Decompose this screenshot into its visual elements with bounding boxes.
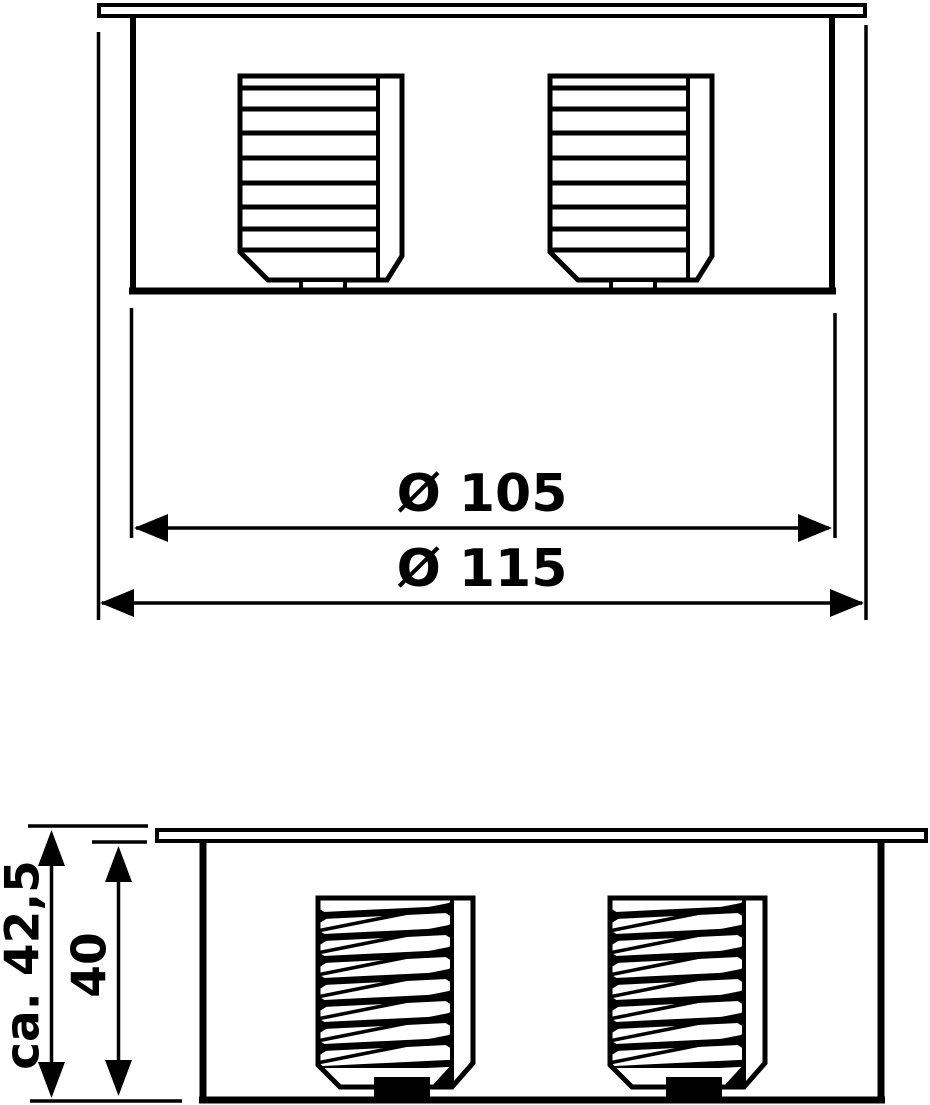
dimension-inner-diameter: Ø 105 [132, 308, 836, 542]
threaded-stud-left [312, 898, 473, 1103]
arrowhead-left-icon [134, 514, 168, 542]
side-view: ca. 42,5 40 [0, 826, 926, 1103]
socket-module-right [550, 76, 712, 290]
arrowhead-down-icon [105, 1060, 132, 1096]
dimension-outer-diameter: Ø 115 [99, 25, 867, 620]
arrowhead-left-icon [100, 589, 134, 617]
technical-drawing-canvas: Ø 105 Ø 115 ca. 42,5 [0, 0, 930, 1105]
arrowhead-right-icon [798, 514, 832, 542]
dimension-recess-depth: 40 [63, 842, 148, 1096]
dimension-label-inner-diameter: Ø 105 [397, 464, 568, 524]
dimension-label-outer-diameter: Ø 115 [397, 539, 568, 599]
technical-drawing-page: Ø 105 Ø 115 ca. 42,5 [0, 0, 930, 1105]
dimension-label-overall-height: ca. 42,5 [0, 860, 51, 1070]
socket-module-left [240, 76, 402, 290]
threaded-stud-right [604, 898, 765, 1103]
top-view: Ø 105 Ø 115 [99, 5, 867, 620]
dimension-label-recess-depth: 40 [63, 932, 118, 997]
arrowhead-up-icon [105, 846, 132, 882]
cover-plate-side-view [157, 830, 926, 841]
cover-plate-top-view [99, 5, 865, 16]
arrowhead-right-icon [830, 589, 864, 617]
